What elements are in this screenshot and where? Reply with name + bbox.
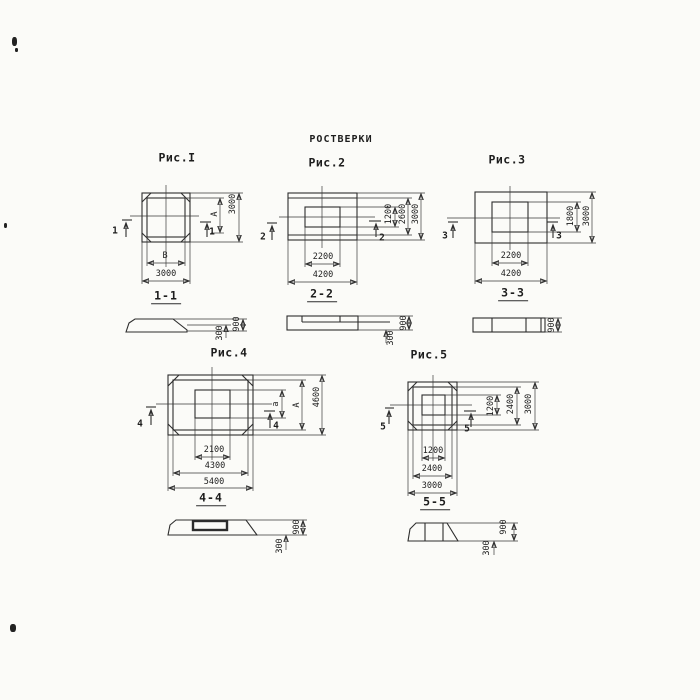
fig2-cut-number-left: 2 (260, 232, 266, 242)
fig3-centerlines (447, 186, 560, 250)
fig3-cut-number-left: 3 (442, 231, 448, 241)
fig4-section-label: 4-4 (196, 492, 226, 506)
fig3-section-label: 3-3 (498, 287, 528, 301)
fig5-plan-outline (408, 382, 457, 430)
fig3-caption: Рис.3 (488, 154, 525, 166)
fig1-section-dim-step: 300 (216, 325, 225, 340)
fig5-cut-number-left: 5 (380, 422, 386, 432)
fig1-dim-height-inner: A (211, 211, 220, 216)
fig4-cut-number-left: 4 (137, 419, 143, 429)
fig1-caption: Рис.I (158, 152, 195, 164)
drawing-canvas (0, 0, 700, 700)
fig4-dim-height-mid: A (293, 402, 302, 407)
fig5-dim-width-outer: 3000 (422, 482, 442, 491)
fig1-dim-height-outer: 3000 (229, 194, 238, 214)
fig2-dim-height-inner: 1200 (385, 204, 394, 224)
fig3-dim-height-outer: 3000 (583, 206, 592, 226)
fig5-dim-height-inner: 1200 (487, 396, 496, 416)
sheet-title: РОСТВЕРКИ (309, 135, 372, 145)
fig3-cut-markers (448, 222, 558, 238)
fig3-dim-width-inner: 2200 (501, 252, 521, 261)
fig1-cut-number-left: 1 (112, 226, 118, 236)
fig1-cut-markers (122, 220, 211, 237)
fig4-dim-width-mid: 4300 (205, 462, 225, 471)
fig5-section-dim-step: 300 (483, 540, 492, 555)
fig4-section-view (168, 520, 307, 550)
fig5-section-label: 5-5 (420, 496, 450, 510)
fig1-section-label: 1-1 (151, 290, 181, 304)
fig1-dim-width-outer: 3000 (156, 270, 176, 279)
fig2-centerlines (279, 186, 375, 248)
fig4-dim-height-outer: 4600 (313, 387, 322, 407)
fig3-plan-outline (475, 192, 547, 243)
fig4-dim-width-outer: 5400 (204, 478, 224, 487)
fig4-dim-width-inner: 2100 (204, 446, 224, 455)
fig5-dim-width-inner: 1200 (423, 447, 443, 456)
fig2-caption: Рис.2 (308, 157, 345, 169)
fig3-dim-height-inner: 1800 (567, 206, 576, 226)
fig2-dim-width-outer: 4200 (313, 271, 333, 280)
fig2-section-dim-step: 300 (387, 330, 396, 345)
fig5-dim-height-mid: 2400 (507, 394, 516, 414)
fig4-dim-height-inner: a (272, 401, 281, 406)
fig3-cut-number-inner: 3 (556, 231, 562, 241)
fig2-dim-height-mid: 2600 (399, 204, 408, 224)
fig5-section-dim-height: 900 (500, 519, 509, 534)
fig2-cut-markers (267, 221, 381, 240)
fig4-plan-outline (168, 375, 253, 435)
fig2-section-dim-height: 900 (400, 315, 409, 330)
fig1-dim-width-inner: B (162, 252, 167, 261)
fig1-cut-number-inner: 1 (209, 227, 215, 237)
fig2-cut-number-inner: 2 (379, 233, 385, 243)
fig5-cut-markers (385, 408, 476, 427)
fig3-section-dim-height: 900 (548, 317, 557, 332)
fig5-dimensions (408, 382, 539, 496)
fig5-cut-number-inner: 5 (464, 424, 470, 434)
fig2-dim-width-inner: 2200 (313, 253, 333, 262)
fig4-dimensions (168, 375, 326, 491)
fig4-cut-number-inner: 4 (273, 421, 279, 431)
fig4-caption: Рис.4 (210, 347, 247, 359)
fig5-dim-height-outer: 3000 (525, 394, 534, 414)
drawing-sheet: РОСТВЕРКИ Рис.I 1 1 A 3000 B 3000 1-1 30… (0, 0, 700, 700)
fig3-dim-width-outer: 4200 (501, 270, 521, 279)
fig3-dimensions (475, 192, 596, 284)
fig4-section-dim-step: 300 (276, 538, 285, 553)
fig1-section-view (126, 319, 247, 338)
fig2-plan-outline (288, 193, 357, 240)
fig2-section-label: 2-2 (307, 288, 337, 302)
fig4-section-dim-height: 900 (293, 519, 302, 534)
fig2-dim-height-outer: 3000 (412, 204, 421, 224)
fig5-caption: Рис.5 (410, 349, 447, 361)
fig5-dim-width-mid: 2400 (422, 465, 442, 474)
fig1-section-dim-height: 900 (233, 316, 242, 331)
